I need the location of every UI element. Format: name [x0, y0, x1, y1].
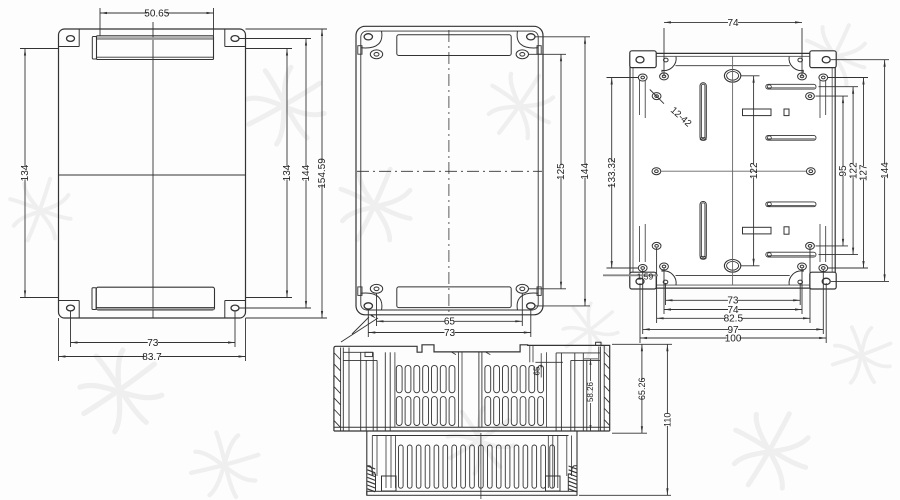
svg-text:73: 73: [444, 328, 456, 339]
svg-text:83.7: 83.7: [142, 352, 162, 363]
svg-text:73: 73: [147, 338, 159, 349]
svg-text:74: 74: [727, 18, 739, 29]
svg-text:144: 144: [301, 164, 312, 181]
svg-text:125: 125: [556, 163, 567, 180]
svg-text:50.65: 50.65: [144, 8, 169, 19]
svg-text:133.32: 133.32: [607, 157, 618, 188]
svg-text:127: 127: [859, 164, 870, 181]
svg-text:65.26: 65.26: [637, 378, 647, 401]
svg-text:122: 122: [749, 162, 760, 179]
svg-text:65: 65: [444, 317, 456, 328]
svg-text:58.26: 58.26: [586, 381, 595, 402]
svg-text:82.5: 82.5: [724, 314, 744, 325]
svg-text:100: 100: [725, 333, 742, 344]
svg-text:1.59: 1.59: [637, 272, 654, 282]
svg-text:122: 122: [848, 162, 859, 179]
svg-text:65: 65: [533, 366, 542, 375]
svg-text:110: 110: [662, 413, 672, 427]
svg-text:144: 144: [580, 163, 591, 180]
svg-text:144: 144: [880, 162, 891, 179]
svg-text:134: 134: [20, 164, 31, 181]
svg-text:154.59: 154.59: [317, 158, 328, 189]
svg-text:134: 134: [282, 164, 293, 181]
